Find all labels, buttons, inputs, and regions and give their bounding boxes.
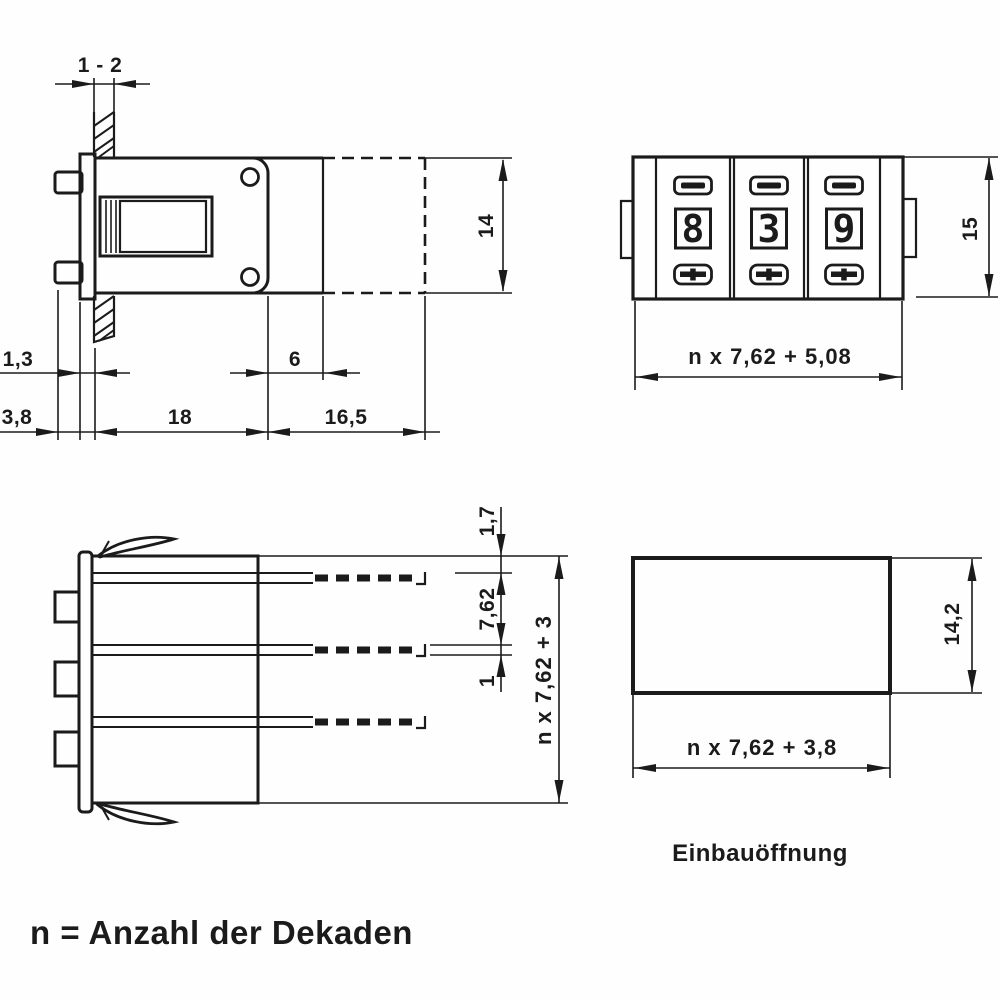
dim-label-flange: 1,3 xyxy=(3,348,34,371)
footnote: n = Anzahl der Dekaden xyxy=(30,914,413,951)
bezel-edge xyxy=(253,158,268,293)
dim-label-pin-offset: 3,8 xyxy=(2,406,33,429)
screw-hole-bottom xyxy=(242,269,259,286)
dim-label-pin-width: 1 xyxy=(476,675,499,687)
dim-label-body-depth: 18 xyxy=(168,406,192,429)
top-body xyxy=(92,556,258,803)
dim-label-front-width: n x 7,62 + 5,08 xyxy=(688,344,852,369)
body-outline xyxy=(95,158,323,293)
setting-window xyxy=(100,197,212,256)
side-latch-right xyxy=(903,199,916,257)
minus-icon xyxy=(757,183,781,189)
top-extension-lines xyxy=(258,556,568,803)
tab-1 xyxy=(55,592,79,622)
dim-label-pin-pitch: 7,62 xyxy=(476,588,499,631)
dim-label-cutout-width: n x 7,62 + 3,8 xyxy=(687,735,837,760)
dim-label-bezel: 6 xyxy=(289,348,301,371)
decade-module-2: 3 xyxy=(751,177,788,284)
top-view: 1,7 7,62 1 n x 7,62 + 3 xyxy=(55,506,568,824)
tab-3 xyxy=(55,732,79,766)
cutout-view: 14,2 n x 7,62 + 3,8 Einbauöffnung xyxy=(633,558,982,867)
module-walls xyxy=(92,573,313,727)
pin-lower xyxy=(55,262,82,283)
decade-module-1: 8 xyxy=(675,177,712,284)
spring-clip-top xyxy=(98,537,174,557)
digit-value-3: 9 xyxy=(833,207,856,251)
spring-clip-bottom xyxy=(98,804,174,824)
flange-strip xyxy=(79,552,92,812)
dim-label-top-width: n x 7,62 + 3 xyxy=(531,615,556,745)
panel-hatch-lower xyxy=(94,296,114,342)
technical-drawing-sheet: 1 - 2 xyxy=(0,0,1000,1000)
digit-value-1: 8 xyxy=(682,207,705,251)
pin-upper xyxy=(55,172,82,193)
minus-icon xyxy=(681,183,705,189)
pins-dashed xyxy=(315,578,417,722)
dim-label-height: 14 xyxy=(475,214,498,238)
dim-label-rear-depth: 16,5 xyxy=(325,406,368,429)
front-height-extension xyxy=(903,157,998,297)
drawing-canvas: 1 - 2 xyxy=(0,0,1000,1000)
panel-extension-lines xyxy=(94,78,114,112)
cutout-rect xyxy=(633,558,890,693)
side-latch-left xyxy=(621,201,633,258)
cutout-caption: Einbauöffnung xyxy=(672,840,848,867)
dim-label-panel-thickness: 1 - 2 xyxy=(78,54,123,77)
dim-label-cutout-height: 14,2 xyxy=(941,603,964,646)
body-dashed-extension xyxy=(323,158,425,293)
pin-end-hooks xyxy=(416,572,425,728)
digit-value-2: 3 xyxy=(758,207,781,251)
decade-module-3: 9 xyxy=(826,177,863,284)
tab-2 xyxy=(55,662,79,696)
side-view: 1 - 2 xyxy=(0,54,512,440)
height-extension-lines xyxy=(425,158,512,293)
dim-label-front-height: 15 xyxy=(959,217,982,241)
screw-hole-top xyxy=(242,169,259,186)
dim-label-clip-gap: 1,7 xyxy=(476,506,499,537)
panel-hatch-upper xyxy=(94,112,114,157)
front-view: 8 3 9 15 xyxy=(621,157,998,390)
minus-icon xyxy=(832,183,856,189)
